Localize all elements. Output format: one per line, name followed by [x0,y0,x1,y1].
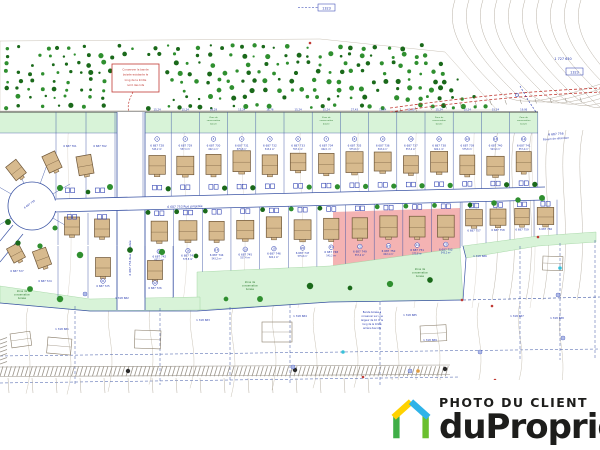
svg-text:557,4 m²: 557,4 m² [240,257,250,260]
svg-text:conservation: conservation [242,283,259,287]
house [537,207,553,227]
house [209,221,224,242]
house [262,155,277,177]
svg-text:conserver sur une: conserver sur une [361,315,383,318]
house [76,154,94,178]
house [177,156,194,177]
svg-text:1 318 687: 1 318 687 [510,314,524,318]
svg-text:543,2 m²: 543,2 m² [326,255,336,258]
svg-text:575,8 m²: 575,8 m² [298,255,308,258]
house [437,215,454,239]
svg-text:602,1 m²: 602,1 m² [209,148,219,151]
svg-text:22: 22 [358,245,362,249]
svg-text:575,8 m²: 575,8 m² [183,258,193,261]
house [346,152,363,175]
svg-text:15,24: 15,24 [323,108,331,112]
svg-text:575,8 m²: 575,8 m² [237,148,247,151]
house [380,216,397,240]
svg-text:15,24: 15,24 [238,108,246,112]
svg-text:1 318 682: 1 318 682 [115,296,129,300]
svg-text:602,1 m²: 602,1 m² [321,148,331,151]
street-hatch [0,338,450,394]
svg-text:16: 16 [186,249,190,253]
svg-text:13: 13 [494,137,498,141]
svg-text:557,4 m²: 557,4 m² [293,148,303,151]
svg-text:long de la limite: long de la limite [125,78,147,82]
house [319,153,335,175]
svg-text:15,24: 15,24 [464,108,472,112]
house [487,156,504,177]
svg-text:1 318 685: 1 318 685 [403,313,417,317]
logo-right-roof [411,402,428,418]
svg-text:6 687 725: 6 687 725 [96,284,110,288]
forest-area [0,39,497,111]
house [374,152,391,173]
vertical-road: 6 687 754 Rue projetée [117,112,145,310]
house [409,216,425,239]
svg-text:575,8 m²: 575,8 m² [412,252,422,255]
svg-text:22: 22 [153,281,157,285]
svg-text:6 687 757: 6 687 757 [467,229,481,233]
svg-text:conservation: conservation [412,270,429,274]
svg-text:543,2 m²: 543,2 m² [152,148,162,151]
svg-text:Zone de: Zone de [519,117,528,119]
svg-text:15,24: 15,24 [436,108,444,112]
svg-text:boisée: boisée [246,287,255,291]
svg-text:15,24: 15,24 [154,108,162,112]
svg-text:Zone de: Zone de [17,289,28,293]
house [490,209,506,228]
conservation-strip [0,112,538,133]
svg-text:602,1 m²: 602,1 m² [384,253,394,256]
house [431,151,448,174]
svg-text:6 687 762: 6 687 762 [93,144,107,148]
house [403,156,418,176]
svg-text:Zone de: Zone de [322,117,331,119]
svg-text:1 318 688: 1 318 688 [550,316,564,320]
svg-text:boisée: boisée [520,122,528,125]
watermark: PHOTO DU CLIENT duProprio [384,380,600,450]
svg-text:Bande boisée à: Bande boisée à [363,311,382,314]
house [7,243,27,265]
svg-text:1 727 630: 1 727 630 [554,57,571,61]
house [324,218,339,241]
svg-text:15,24: 15,24 [182,108,190,112]
house [266,217,281,240]
svg-text:conservation: conservation [14,292,31,296]
house [233,151,250,174]
svg-text:575,8 m²: 575,8 m² [462,148,472,151]
svg-text:long de la limite: long de la limite [362,323,382,326]
svg-text:557,4 m²: 557,4 m² [406,148,416,151]
house [6,159,28,182]
svg-text:23: 23 [387,244,391,248]
logo-left-roof [394,402,411,418]
svg-text:15,24: 15,24 [295,108,303,112]
svg-text:Zone de: Zone de [415,267,426,271]
svg-text:6 687 758: 6 687 758 [491,228,505,232]
svg-text:6 687 760: 6 687 760 [539,227,553,231]
svg-text:1 318 684: 1 318 684 [293,314,307,318]
svg-text:543,2 m²: 543,2 m² [441,252,451,255]
svg-text:boisée: boisée [210,122,218,125]
svg-text:21: 21 [101,279,105,283]
svg-text:Bassin de rétention: Bassin de rétention [543,136,570,142]
house [290,153,306,173]
svg-text:nord des lots: nord des lots [127,83,145,87]
svg-text:27,43: 27,43 [351,108,359,112]
svg-text:543,2 m²: 543,2 m² [378,148,388,151]
svg-text:557,4 m²: 557,4 m² [519,148,529,151]
existing-lots: 1 318 6811 318 6821 318 6831 318 6841 31… [0,240,600,385]
svg-text:19,06: 19,06 [520,108,528,112]
svg-text:18: 18 [244,247,248,251]
svg-text:19: 19 [272,247,276,251]
house [352,218,367,241]
svg-text:543,2 m²: 543,2 m² [212,257,222,260]
svg-text:1323: 1323 [570,70,579,74]
svg-text:6 687 724: 6 687 724 [38,279,52,283]
svg-text:14: 14 [522,137,526,141]
svg-text:1 318 689: 1 318 689 [423,338,437,342]
house [237,220,254,241]
svg-text:6 687 761: 6 687 761 [63,144,77,148]
house [516,152,531,174]
svg-text:6 687 754 Rue projetée: 6 687 754 Rue projetée [128,240,132,275]
svg-text:602,1 m²: 602,1 m² [434,148,444,151]
svg-text:conservation: conservation [207,119,221,122]
svg-text:557,4 m²: 557,4 m² [180,148,190,151]
svg-text:18,29: 18,29 [210,108,218,112]
house [151,221,167,243]
duproprio-logo-icon [390,396,432,444]
svg-text:boisée: boisée [436,122,444,125]
svg-text:15,24: 15,24 [492,108,500,112]
house [294,220,311,242]
house [65,217,80,237]
svg-text:6 687 726: 6 687 726 [148,286,162,290]
svg-text:16,76: 16,76 [266,108,274,112]
house [515,208,530,227]
svg-text:1 318 683: 1 318 683 [196,318,210,322]
svg-text:boisée: boisée [18,296,27,300]
house [95,219,110,239]
house [460,155,475,177]
svg-text:largeur de 10 m le: largeur de 10 m le [361,319,384,322]
svg-text:557,4 m²: 557,4 m² [355,254,365,257]
watermark-duproprio: duProprio [439,410,600,444]
svg-text:20: 20 [301,246,305,250]
svg-text:12: 12 [466,137,470,141]
svg-text:conservation: conservation [320,119,334,122]
svg-text:boisée existante le: boisée existante le [123,73,149,77]
svg-text:Zone de: Zone de [435,117,444,119]
svg-text:1 318 681: 1 318 681 [55,327,69,331]
house [179,221,197,243]
svg-text:1 318 686: 1 318 686 [473,254,487,258]
svg-text:575,8 m²: 575,8 m² [350,148,360,151]
svg-text:24: 24 [416,243,420,247]
svg-text:21: 21 [330,245,334,249]
house [466,210,483,229]
svg-text:543,2 m²: 543,2 m² [265,148,275,151]
house [206,154,221,176]
svg-text:conservation: conservation [517,119,531,122]
svg-text:arrière des lots: arrière des lots [363,327,382,330]
house [32,247,52,271]
svg-text:Zone de: Zone de [245,280,256,284]
svg-text:15,24: 15,24 [379,108,387,112]
house [42,151,63,175]
svg-text:25: 25 [444,242,448,246]
svg-text:10: 10 [409,137,413,141]
svg-text:boisée: boisée [323,122,331,125]
svg-text:6 687 759: 6 687 759 [515,228,529,232]
svg-text:boisée: boisée [416,274,425,278]
svg-text:602,1 m²: 602,1 m² [269,256,279,259]
svg-text:6 687 727: 6 687 727 [10,269,24,273]
house [96,258,111,279]
svg-text:Zone de: Zone de [209,117,218,119]
svg-text:Conserver la bande: Conserver la bande [122,68,149,72]
svg-text:17: 17 [215,248,219,252]
svg-text:conservation: conservation [432,119,446,122]
house [149,155,165,176]
svg-text:11: 11 [437,137,441,141]
svg-text:543,2 m²: 543,2 m² [491,148,501,151]
site-plan-photo: Zone deconservationboiséeZone deconserva… [0,0,600,450]
house [148,261,163,282]
svg-text:1323: 1323 [322,6,331,10]
